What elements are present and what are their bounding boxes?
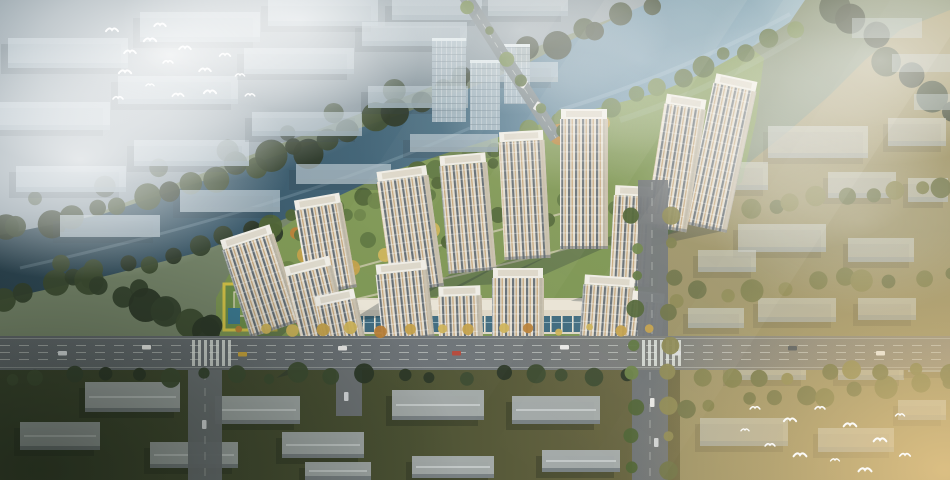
- scene-svg: [0, 0, 950, 480]
- aerial-render-image: [0, 0, 950, 480]
- cloud-fog: [440, 50, 680, 190]
- atmosphere: [0, 0, 950, 480]
